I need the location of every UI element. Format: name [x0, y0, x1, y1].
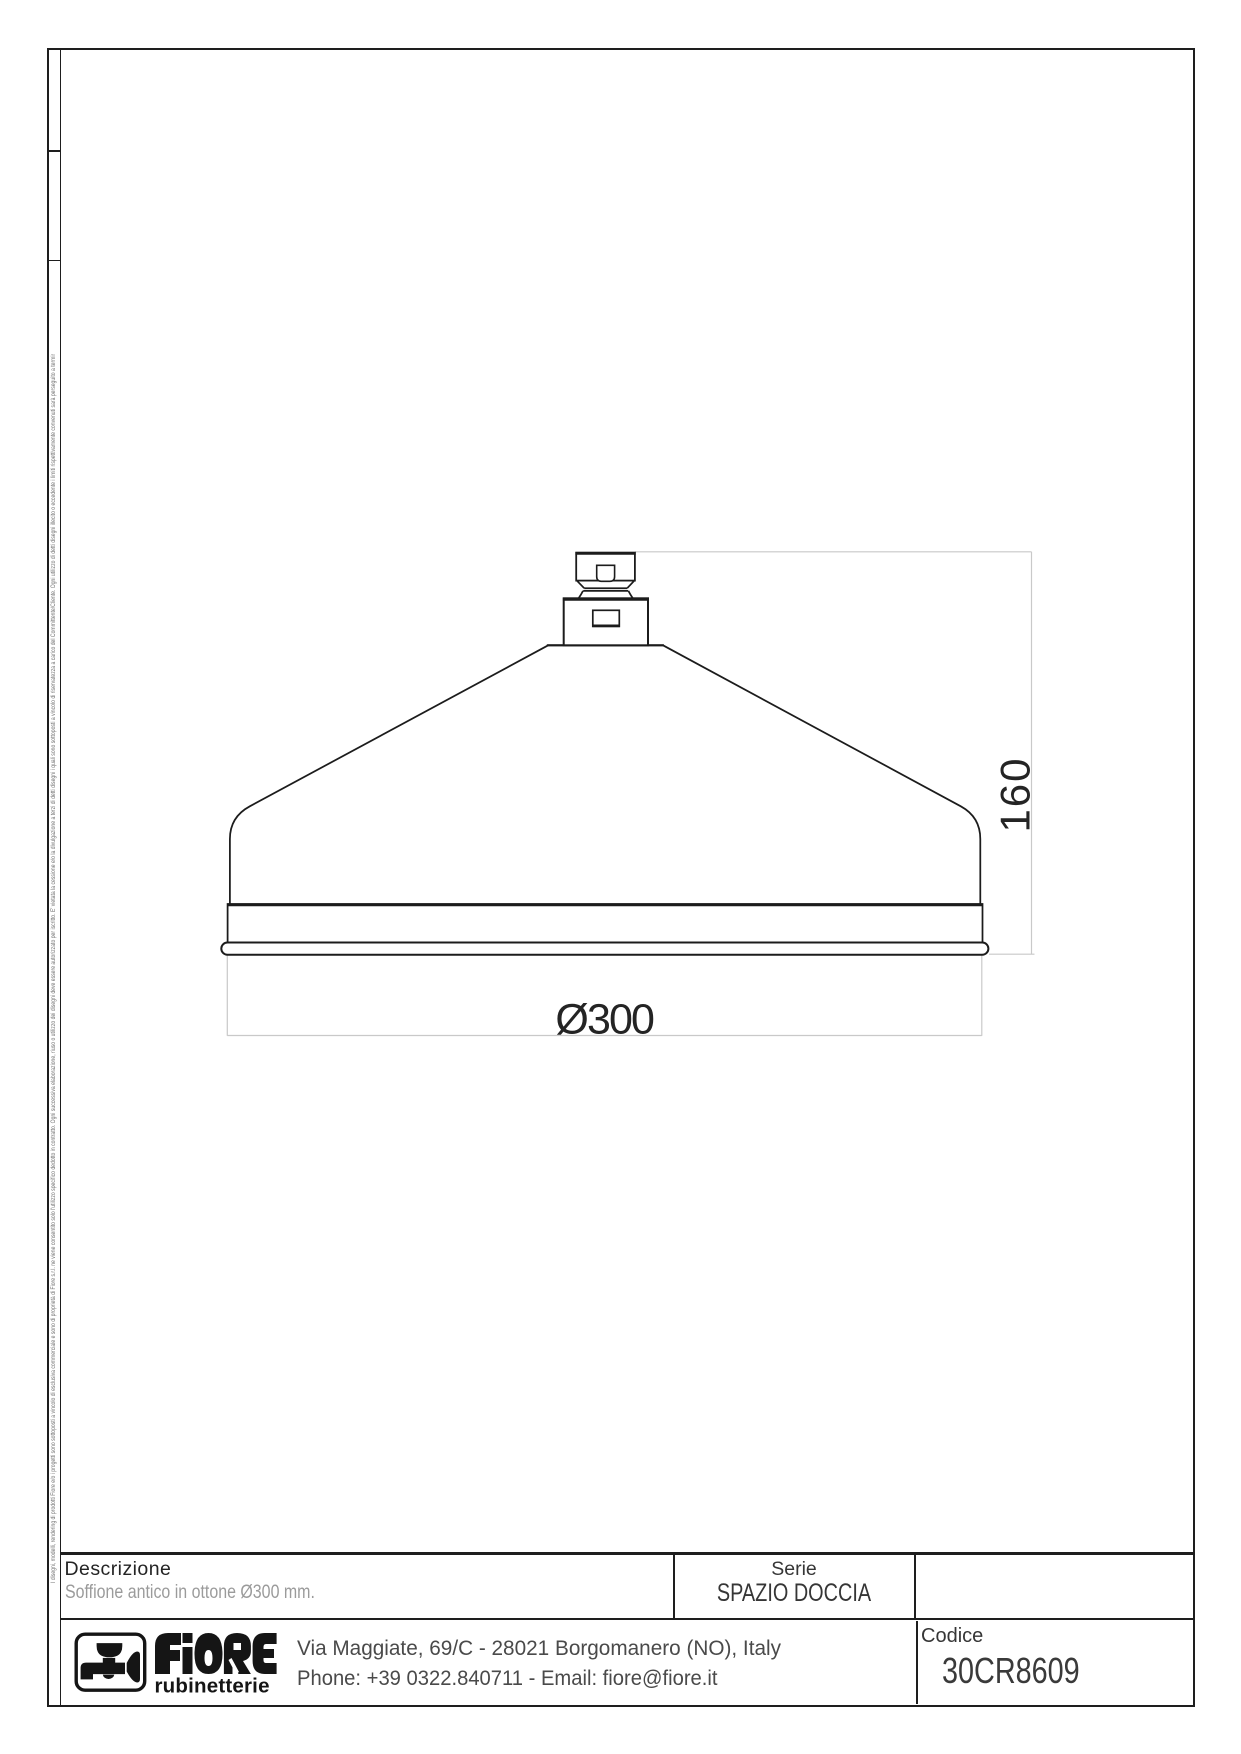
- svg-text:160: 160: [992, 759, 1039, 833]
- svg-text:Ø300: Ø300: [555, 996, 655, 1044]
